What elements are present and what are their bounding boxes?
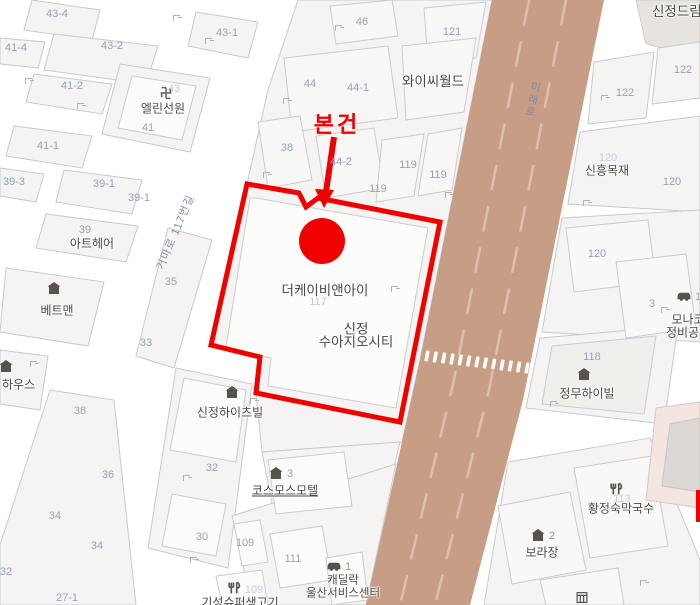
poi-betman: 베트맨: [40, 302, 73, 319]
clipped-red-annotation: [696, 490, 700, 522]
lot-number: 122: [616, 87, 634, 99]
building-icon: [270, 467, 283, 479]
poi-hwangjeongsuk-makguksu: 황정숙막국수: [588, 500, 654, 517]
lot-number: 43-4: [46, 8, 68, 20]
poi-monaco-line1: 모나코: [666, 314, 700, 327]
lot-number: 122: [674, 64, 692, 76]
poi-sinheung-lumber: 신흥목재: [585, 162, 629, 179]
poi-ycworld: 와이씨월드: [402, 70, 464, 90]
car-icon: [327, 561, 342, 572]
lot-number: 41: [142, 122, 154, 134]
lot-number: 46: [356, 16, 368, 28]
lot-number: 36: [102, 469, 114, 481]
entrance-marker-icon: [190, 557, 197, 563]
entrance-marker-icon: [335, 25, 342, 31]
poi-ellin-seonwon: 엘린선원: [141, 100, 185, 117]
lot-number: 32: [206, 462, 218, 474]
entrance-marker-icon: [173, 15, 180, 21]
lot-number: 38: [281, 142, 293, 154]
parcel: [24, 0, 100, 40]
entrance-marker-icon: [391, 286, 398, 292]
poi-cadillac-line1: 캐딜락: [306, 575, 380, 588]
poi-building-number: 1: [345, 561, 351, 573]
building-icon: [0, 360, 13, 372]
poi-subject-complex-line2: 수아지오시티: [319, 336, 394, 349]
entrance-marker-icon: [661, 307, 668, 313]
lot-number: 111: [285, 553, 302, 565]
lot-number: 35: [165, 276, 177, 288]
lot-number: 34: [91, 540, 103, 552]
storage-building-icon: [576, 591, 589, 604]
car-icon: [677, 291, 692, 302]
lot-number: 118: [583, 351, 601, 363]
lot-number: 44: [304, 78, 316, 90]
lot-number: 41-2: [61, 80, 83, 92]
entrance-marker-icon: [183, 475, 190, 481]
lot-number: 119: [429, 169, 447, 181]
map-canvas[interactable]: 본건 미래로 거마로 117번길 43-4 41-4 43-2 43-1 41-…: [0, 0, 700, 605]
poi-sinjeong-heightsville: 신정하이츠빌: [197, 404, 263, 421]
poi-art-hair: 아트헤어: [70, 235, 114, 252]
poi-cosmos-motel: 코스모스모텔: [252, 482, 318, 499]
entrance-marker-icon: [640, 580, 647, 586]
entrance-marker-icon: [77, 103, 84, 109]
poi-building-number: 1: [695, 291, 700, 303]
building-icon: [226, 386, 239, 398]
lot-number: 44-2: [330, 156, 352, 168]
poi-jungmu-hivill: 정무하이빌: [559, 385, 614, 402]
lot-number: 120: [663, 176, 681, 188]
lot-number: 32: [0, 566, 12, 578]
building-icon: [532, 529, 545, 541]
lot-number: 121: [443, 26, 461, 38]
poi-giseong-super: 기성슈퍼생고기: [201, 594, 278, 605]
subject-annotation-label: 본건: [314, 107, 360, 139]
temple-manji-icon: [160, 87, 173, 100]
entrance-marker-icon: [601, 95, 608, 101]
poi-building-number: 2: [549, 530, 555, 542]
poi-building-number: 3: [287, 468, 293, 480]
lot-number: 43-2: [101, 40, 123, 52]
building-icon: [48, 282, 61, 294]
lot-number: 38: [74, 405, 86, 417]
building: [162, 494, 226, 556]
lot-number: 33: [140, 337, 152, 349]
lot-number: 44-1: [347, 82, 369, 94]
parcel: [0, 390, 136, 605]
building-icon: [578, 368, 591, 380]
poi-sinjeong-dream: 신정드림: [652, 0, 700, 20]
lot-number: 120: [588, 248, 606, 260]
poi-subject-building-name: 더케이비앤아이: [282, 279, 369, 299]
lot-number: 27-1: [56, 592, 78, 604]
lot-number: 43-1: [216, 27, 238, 39]
poi-cadillac-ulsan-service: 캐딜락 울산서비스센터: [306, 575, 380, 600]
entrance-marker-icon: [283, 98, 290, 104]
poi-monaco-line2: 정비공업: [666, 326, 700, 339]
lot-number: 39-1: [128, 192, 150, 204]
poi-subject-complex-name: 신정 수아지오시티: [319, 324, 394, 349]
poi-monaco-repair: 모나코 정비공업: [666, 314, 700, 339]
poi-borajang: 보라장: [525, 544, 558, 561]
poi-cadillac-line2: 울산서비스센터: [306, 587, 380, 600]
lot-number: 30: [196, 531, 208, 543]
entrance-marker-icon: [263, 172, 270, 178]
lot-number: 34: [49, 510, 61, 522]
building: [542, 336, 656, 414]
lot-number: 3: [649, 298, 655, 310]
subject-marker-dot: [299, 218, 345, 264]
lot-number: 119: [399, 159, 417, 171]
lot-number: 41-1: [37, 140, 59, 152]
restaurant-icon: [228, 582, 241, 595]
entrance-marker-icon: [30, 361, 37, 367]
restaurant-icon: [610, 483, 623, 496]
entrance-marker-icon: [550, 401, 557, 407]
lot-number: 41-4: [5, 42, 27, 54]
lot-number: 109: [236, 537, 254, 549]
entrance-marker-icon: [583, 200, 590, 206]
lot-number: 39-3: [3, 176, 25, 188]
poi-haus: 하우스: [2, 376, 35, 393]
entrance-marker-icon: [445, 192, 452, 198]
entrance-marker-icon: [25, 78, 32, 84]
lot-number: 119: [369, 183, 387, 195]
lot-number: 39-1: [93, 178, 115, 190]
entrance-marker-icon: [205, 38, 212, 44]
